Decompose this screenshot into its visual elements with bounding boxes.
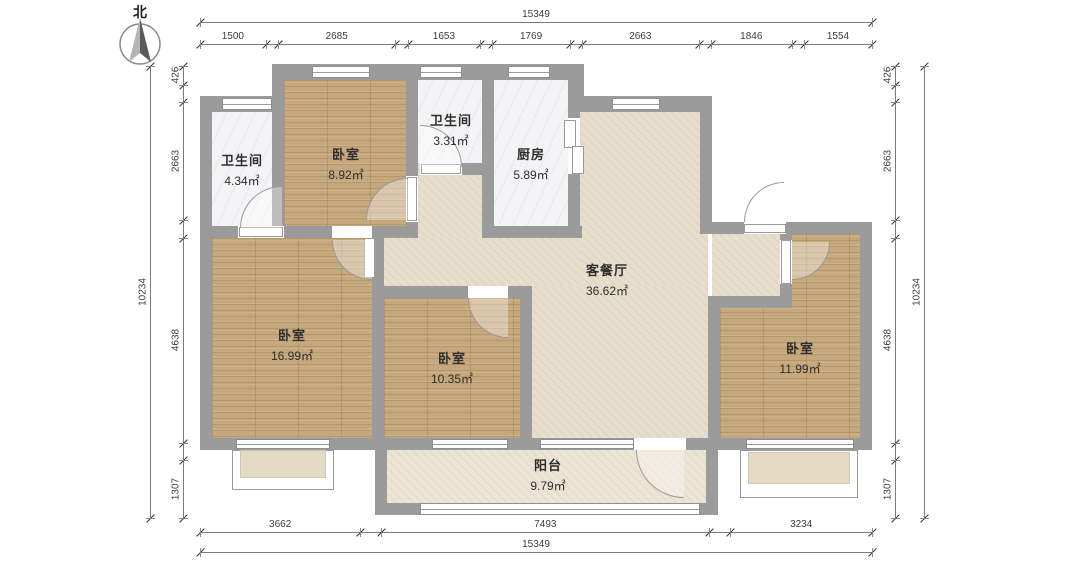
dimension-ext: [146, 518, 155, 519]
dimension-ext: [920, 518, 929, 519]
wall: [520, 298, 532, 450]
dimension-ext: [891, 443, 900, 444]
dimension-line: [183, 66, 184, 518]
dimension-line: [150, 66, 151, 518]
window: [236, 439, 330, 449]
room-label-bath-n: 卫生间 3.31㎡: [430, 110, 472, 149]
wall: [200, 96, 212, 450]
door-leaf-entry: [744, 224, 786, 233]
dimension-ext: [179, 460, 188, 461]
dimension-label: 10234: [138, 278, 149, 306]
dimension-label: 1846: [711, 31, 792, 42]
room-label-bed-e: 卧室 11.99㎡: [779, 338, 820, 377]
floor-hall-e: [712, 234, 780, 296]
sliding-door-kitchen: [572, 146, 584, 174]
dimension-ext: [891, 518, 900, 519]
door-opening: [634, 438, 686, 450]
room-label-bed-n: 卧室 8.92㎡: [328, 144, 363, 183]
wall: [384, 286, 468, 298]
dimension-label: 2663: [582, 31, 699, 42]
dimension-ext: [872, 548, 873, 557]
window: [540, 439, 634, 449]
dimension-ext: [179, 518, 188, 519]
wall: [568, 80, 580, 118]
dimension-line: [200, 552, 872, 553]
window: [312, 66, 370, 78]
door-opening: [468, 286, 508, 298]
dimension-line: [895, 66, 896, 518]
wall: [462, 163, 494, 175]
dimension-ext: [891, 102, 900, 103]
dimension-label: 15349: [200, 539, 872, 550]
dimension-label: 2685: [278, 31, 396, 42]
floor-living-s: [532, 286, 708, 438]
dimension-ext: [179, 220, 188, 221]
dimension-label: 1554: [804, 31, 872, 42]
bay-window-left: [240, 450, 326, 478]
dimension-ext: [699, 40, 700, 49]
dimension-ext: [891, 220, 900, 221]
dimension-ext: [920, 66, 929, 67]
dimension-ext: [891, 460, 900, 461]
room-label-balcony: 阳台 9.79㎡: [530, 455, 565, 494]
dimension-ext: [395, 40, 396, 49]
dimension-line: [200, 44, 872, 45]
wall: [708, 296, 720, 450]
window: [612, 98, 660, 110]
dimension-label: 4638: [171, 329, 182, 351]
dimension-ext: [709, 528, 710, 537]
window: [222, 98, 272, 110]
dimension-label: 1769: [492, 31, 569, 42]
dimension-ext: [872, 40, 873, 49]
window: [746, 439, 854, 449]
wall: [780, 284, 792, 296]
wall: [786, 222, 872, 234]
room-label-living: 客餐厅 36.62㎡: [586, 260, 628, 299]
floor-plan-canvas: 北 15002685165317692663184615541534936627…: [0, 0, 1074, 576]
room-label-bed-w: 卧室 16.99㎡: [271, 325, 313, 364]
window: [508, 66, 550, 78]
wall: [284, 226, 332, 238]
wall: [712, 222, 744, 234]
dimension-label: 1653: [408, 31, 480, 42]
dimension-ext: [891, 238, 900, 239]
door-leaf-bed-n: [407, 177, 417, 221]
dimension-label: 2663: [883, 150, 894, 172]
dimension-ext: [891, 85, 900, 86]
door-arc-entry: [744, 182, 784, 222]
room-label-kitchen: 厨房 5.89㎡: [513, 144, 548, 183]
wall: [200, 226, 238, 238]
dimension-ext: [872, 528, 873, 537]
wall: [272, 80, 284, 96]
dimension-ext: [792, 40, 793, 49]
window: [432, 439, 508, 449]
dimension-label: 15349: [200, 9, 872, 20]
room-label-bath-nw: 卫生间 4.34㎡: [221, 150, 263, 189]
wall: [508, 286, 532, 298]
dimension-line: [200, 22, 872, 23]
dimension-ext: [179, 102, 188, 103]
wall: [482, 175, 494, 226]
dimension-label: 3662: [200, 519, 360, 530]
bay-window-right: [748, 452, 850, 484]
dimension-label: 426: [883, 67, 894, 84]
dimension-label: 426: [171, 67, 182, 84]
door-leaf-bath-nw: [239, 227, 283, 237]
wall: [406, 80, 418, 176]
wall: [720, 296, 792, 308]
dimension-ext: [146, 66, 155, 67]
dimension-label: 10234: [912, 278, 923, 306]
dimension-label: 2663: [171, 150, 182, 172]
wall: [860, 234, 872, 450]
dimension-label: 7493: [381, 519, 709, 530]
wall: [372, 226, 418, 238]
dimension-label: 4638: [883, 329, 894, 351]
room-label-bed-s: 卧室 10.35㎡: [431, 348, 473, 387]
dimension-ext: [266, 40, 267, 49]
dimension-ext: [179, 443, 188, 444]
door-leaf-bed-e: [781, 240, 791, 284]
door-opening: [332, 226, 372, 238]
dimension-label: 1307: [171, 478, 182, 500]
wall: [700, 112, 712, 234]
wall: [482, 226, 582, 238]
window: [420, 503, 700, 515]
dimension-label: 3234: [730, 519, 872, 530]
dimension-line: [924, 66, 925, 518]
dimension-ext: [872, 18, 873, 27]
floor-hall-w: [384, 238, 582, 286]
dimension-ext: [360, 528, 361, 537]
dimension-ext: [179, 238, 188, 239]
dimension-ext: [179, 85, 188, 86]
dimension-label: 1500: [200, 31, 266, 42]
dimension-ext: [570, 40, 571, 49]
dimension-ext: [480, 40, 481, 49]
sliding-door-kitchen: [564, 120, 576, 148]
dimension-line: [200, 532, 872, 533]
dimension-label: 1307: [883, 478, 894, 500]
window: [420, 66, 462, 78]
wall: [482, 64, 494, 163]
